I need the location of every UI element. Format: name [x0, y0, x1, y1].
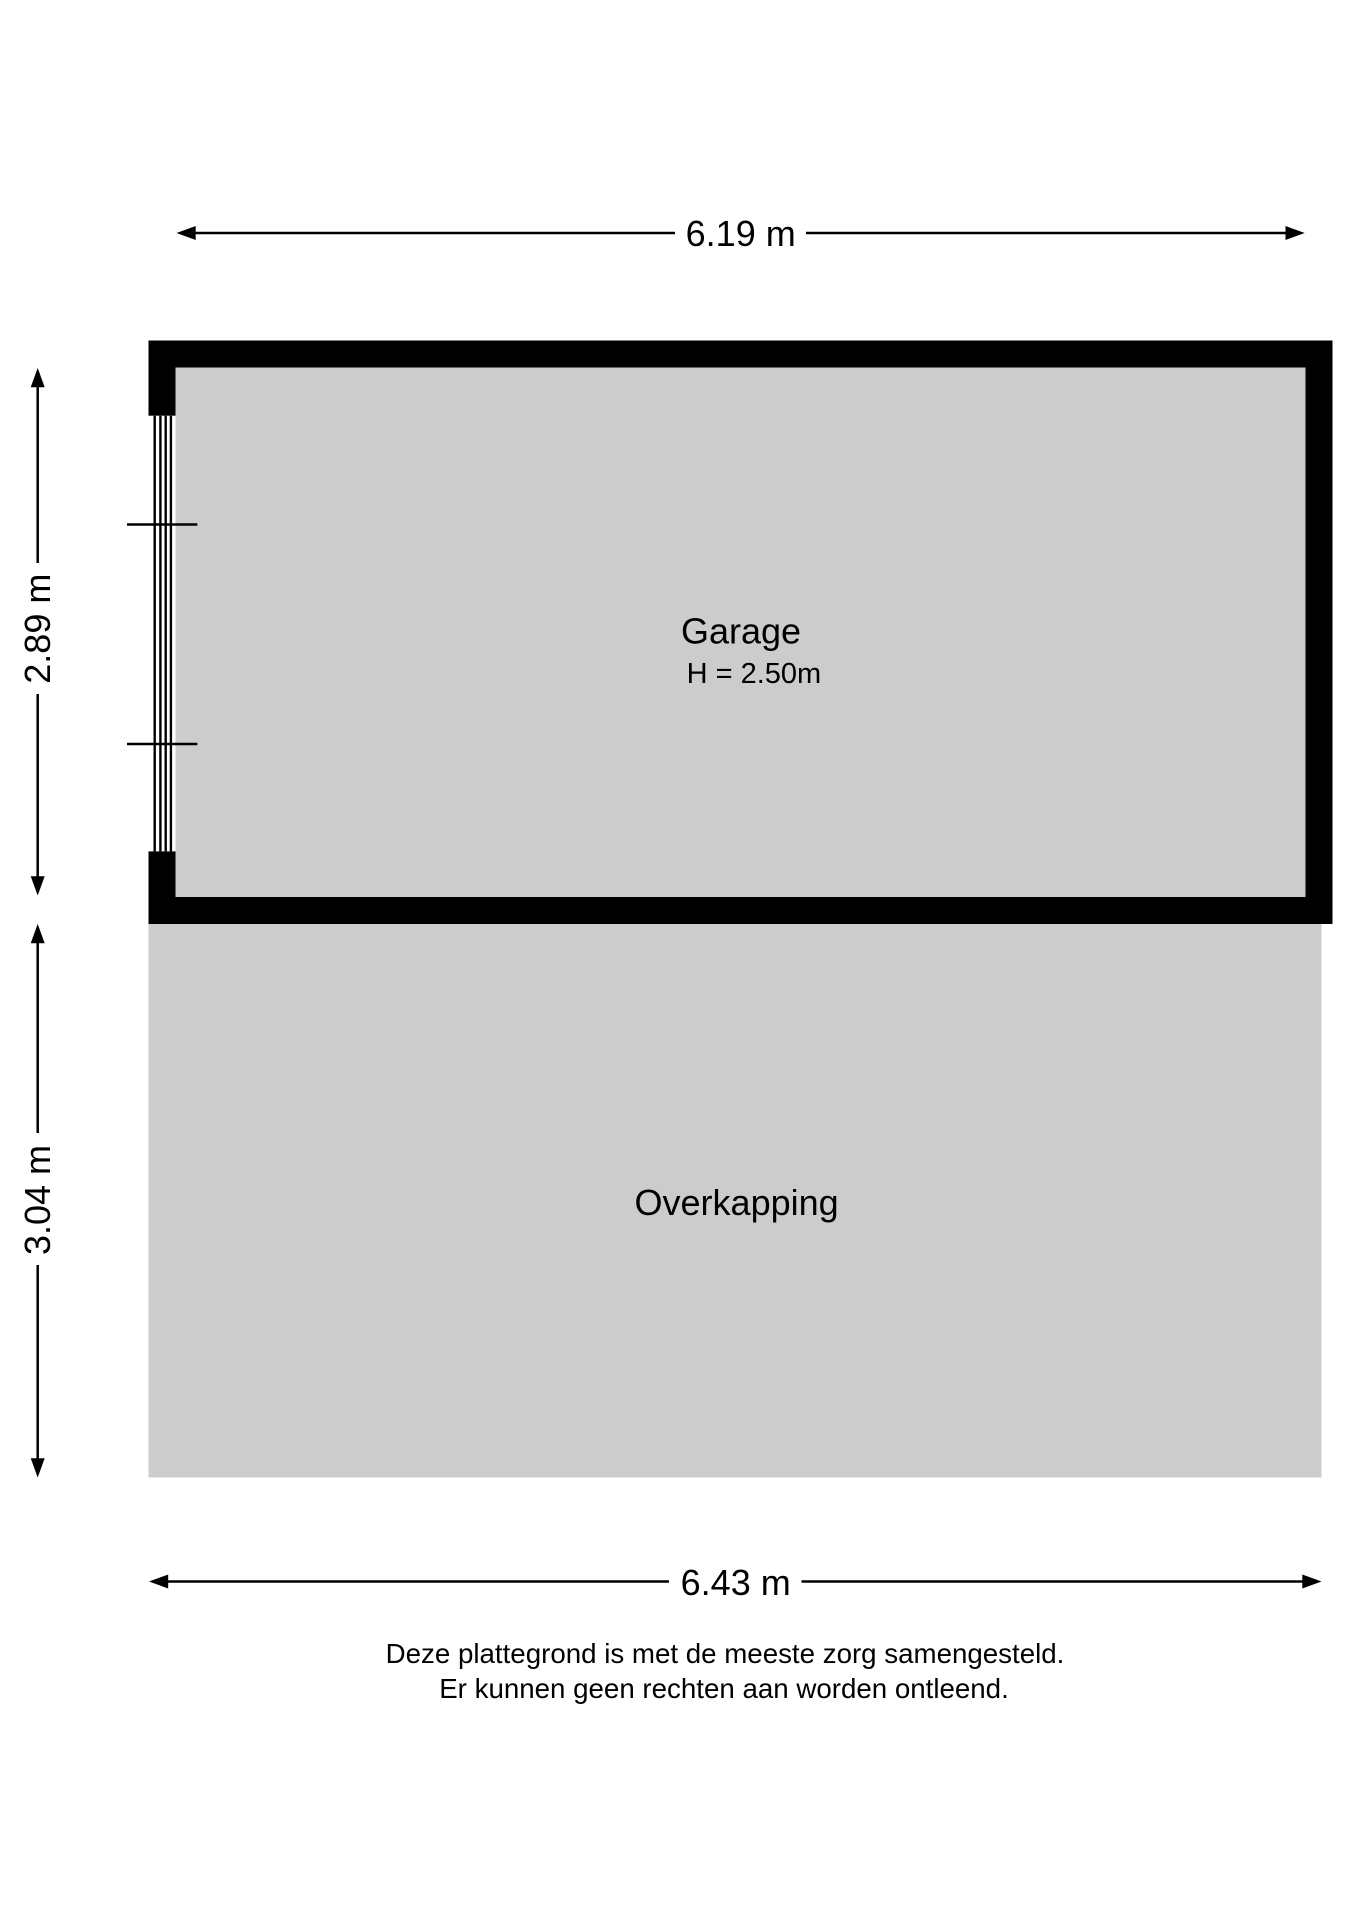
svg-text:Deze plattegrond is met de mee: Deze plattegrond is met de meeste zorg s… [386, 1638, 1065, 1669]
svg-text:6.19 m: 6.19 m [686, 213, 796, 254]
svg-text:Er kunnen geen rechten aan wor: Er kunnen geen rechten aan worden ontlee… [439, 1673, 1009, 1704]
svg-text:Garage: Garage [681, 611, 801, 652]
svg-text:3.04 m: 3.04 m [17, 1145, 58, 1255]
svg-text:6.43 m: 6.43 m [681, 1562, 791, 1603]
svg-text:Overkapping: Overkapping [635, 1182, 839, 1223]
svg-text:H = 2.50m: H = 2.50m [687, 658, 822, 690]
svg-text:2.89 m: 2.89 m [17, 574, 58, 684]
